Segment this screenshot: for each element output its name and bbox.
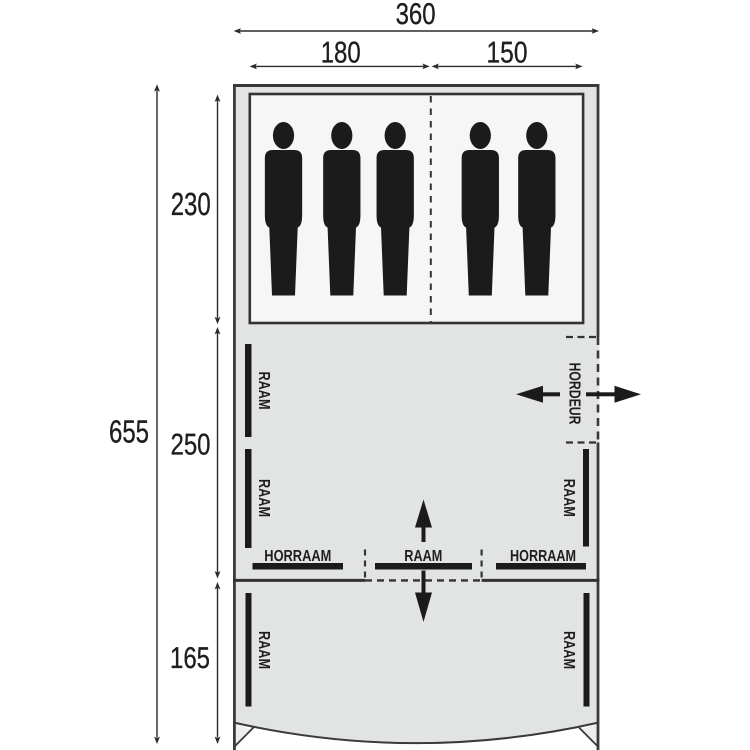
svg-text:655: 655 bbox=[109, 413, 149, 449]
svg-text:165: 165 bbox=[170, 642, 210, 675]
svg-text:RAAM: RAAM bbox=[255, 631, 272, 669]
svg-text:RAAM: RAAM bbox=[560, 479, 577, 517]
svg-text:HORRAAM: HORRAAM bbox=[510, 548, 576, 565]
svg-text:RAAM: RAAM bbox=[255, 372, 272, 410]
svg-text:RAAM: RAAM bbox=[255, 479, 272, 517]
svg-text:RAAM: RAAM bbox=[404, 548, 442, 565]
svg-text:180: 180 bbox=[321, 37, 361, 70]
svg-text:360: 360 bbox=[396, 0, 436, 31]
svg-text:RAAM: RAAM bbox=[560, 631, 577, 669]
svg-text:HORDEUR: HORDEUR bbox=[565, 363, 582, 425]
svg-text:HORRAAM: HORRAAM bbox=[264, 548, 331, 565]
svg-text:150: 150 bbox=[487, 37, 528, 70]
svg-text:230: 230 bbox=[171, 186, 211, 222]
svg-text:250: 250 bbox=[171, 428, 211, 461]
